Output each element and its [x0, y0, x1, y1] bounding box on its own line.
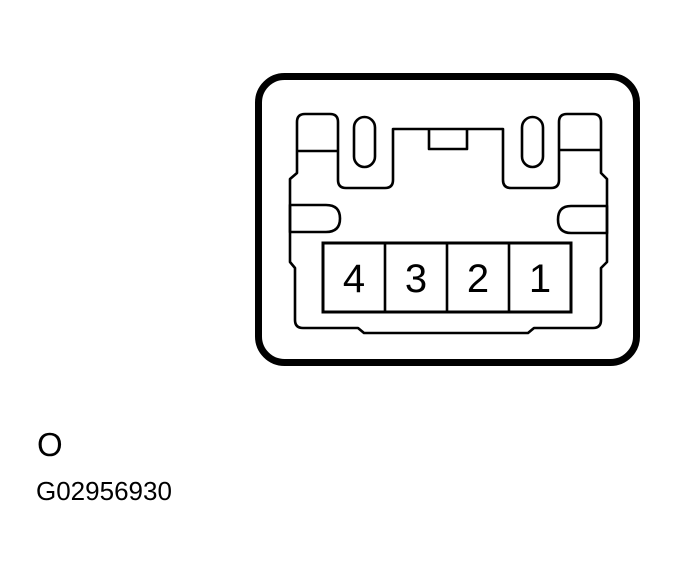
center-key-notch — [429, 129, 467, 149]
right-vertical-slot — [522, 117, 543, 167]
pin-label-3: 3 — [405, 257, 427, 301]
right-horizontal-slot — [558, 206, 607, 233]
pin-label-4: 4 — [343, 257, 365, 301]
left-vertical-slot — [354, 117, 375, 167]
figure-id: G02956930 — [36, 478, 172, 504]
pin-label-2: 2 — [467, 257, 489, 301]
left-horizontal-slot — [290, 205, 340, 232]
pin-cell-dividers — [385, 243, 509, 312]
connector-housing-outline — [259, 77, 637, 363]
pin-label-1: 1 — [529, 257, 551, 301]
connector-color-label: O — [37, 428, 63, 461]
